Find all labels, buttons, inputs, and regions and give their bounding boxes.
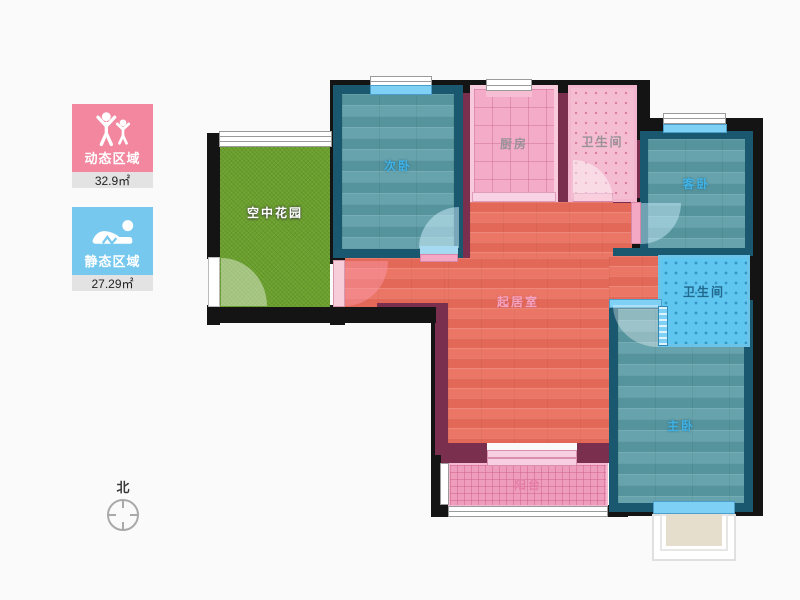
room-balcony bbox=[448, 463, 608, 507]
legend-card-dynamic: 动态区域 bbox=[72, 104, 153, 172]
people-active-icon bbox=[90, 110, 136, 150]
balcony-side-window bbox=[440, 463, 449, 505]
room-kitchen bbox=[470, 85, 558, 202]
sky-garden-window bbox=[219, 131, 332, 147]
interior-wall bbox=[558, 85, 568, 202]
interior-wall bbox=[435, 303, 448, 463]
outer-wall bbox=[207, 307, 436, 323]
kitchen-window bbox=[486, 79, 532, 91]
living-room-floor bbox=[448, 258, 609, 443]
balcony-window bbox=[448, 506, 608, 517]
outer-wall bbox=[207, 133, 220, 259]
sky-garden-door bbox=[208, 257, 220, 307]
outer-wall bbox=[431, 310, 435, 460]
person-resting-icon bbox=[88, 215, 138, 251]
master-bedroom-window bbox=[653, 501, 735, 514]
kitchen-sliding-door bbox=[472, 192, 556, 202]
legend-dynamic-area: 32.9㎡ bbox=[72, 172, 153, 188]
interior-wall bbox=[577, 443, 613, 463]
room-bathroom-right bbox=[658, 255, 750, 347]
legend-static-label: 静态区域 bbox=[72, 251, 153, 270]
secondary-bedroom-door bbox=[420, 254, 458, 262]
legend-card-static: 静态区域 bbox=[72, 207, 153, 275]
compass-north-label: 北 bbox=[116, 480, 129, 495]
guest-bedroom-window-sill bbox=[663, 124, 727, 133]
balcony-sliding-door bbox=[487, 450, 577, 458]
legend-dynamic-label: 动态区域 bbox=[72, 148, 153, 167]
legend-static-area: 27.29㎡ bbox=[72, 275, 153, 291]
entry-door bbox=[333, 260, 345, 307]
bay-window-sill bbox=[666, 514, 722, 546]
living-room-floor bbox=[609, 256, 662, 302]
compass: 北 bbox=[101, 478, 145, 534]
floorplan-page: 动态区域 32.9㎡ 静态区域 27.29㎡ 北 bbox=[0, 0, 800, 600]
living-room-floor bbox=[470, 202, 632, 258]
guest-bedroom-window bbox=[663, 113, 726, 124]
balcony-sliding-door bbox=[487, 458, 577, 466]
interior-wall bbox=[463, 85, 470, 258]
kitchen-window-sill bbox=[486, 91, 532, 97]
secondary-bedroom-window-sill bbox=[370, 85, 432, 95]
interior-wall bbox=[437, 443, 487, 463]
guest-bedroom-door bbox=[631, 202, 641, 244]
bathroom-right-door bbox=[658, 306, 668, 346]
secondary-bedroom-threshold bbox=[420, 246, 458, 254]
